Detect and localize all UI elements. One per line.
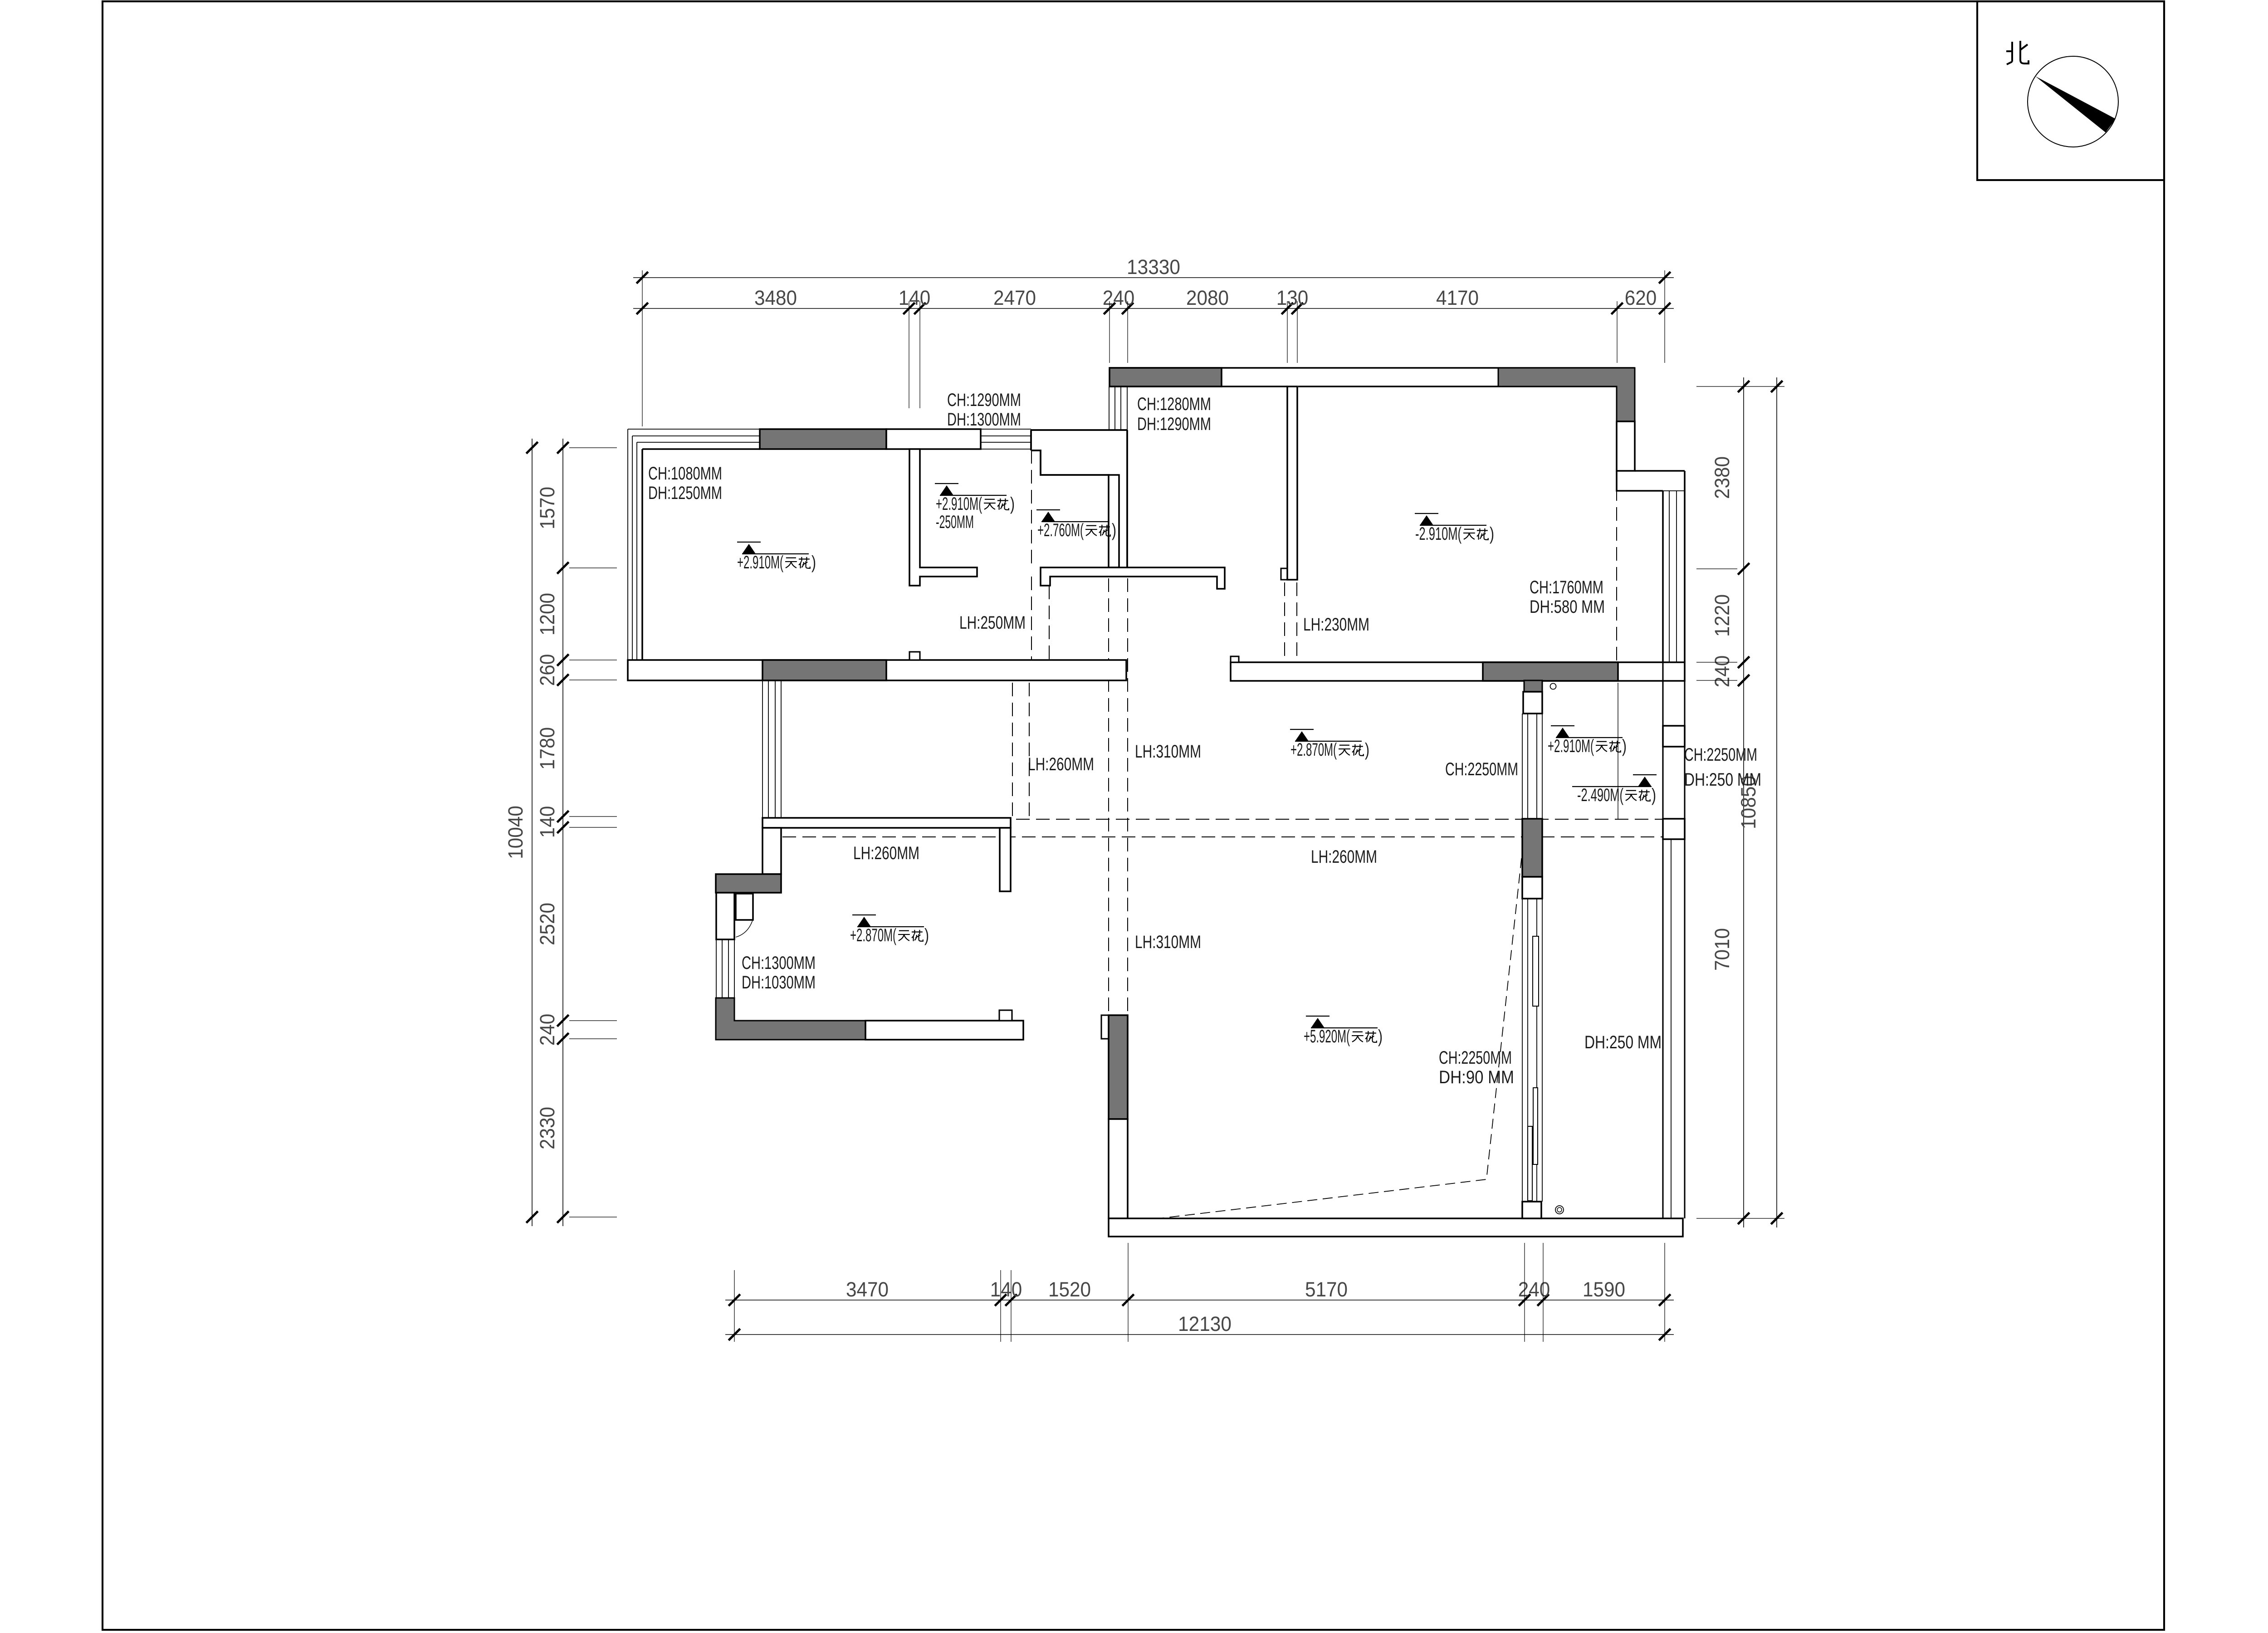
svg-text:240: 240 [1711,655,1734,688]
svg-text:+2.910M(: +2.910M( [1548,736,1594,756]
svg-text:): ) [811,552,816,572]
svg-text:260: 260 [536,654,559,686]
svg-text:): ) [1365,740,1369,760]
svg-text:130: 130 [1276,286,1309,309]
svg-text:DH:1300MM: DH:1300MM [947,410,1021,430]
svg-text:1520: 1520 [1048,1278,1091,1301]
svg-text:): ) [1622,736,1627,756]
svg-text:+5.920M(: +5.920M( [1304,1027,1350,1046]
svg-text:140: 140 [990,1278,1022,1301]
svg-text:): ) [1652,785,1656,805]
svg-text:2380: 2380 [1711,456,1734,499]
svg-text:): ) [1112,520,1116,540]
svg-text:1200: 1200 [536,593,559,636]
svg-text:): ) [1490,524,1494,544]
svg-text:LH:260MM: LH:260MM [1311,847,1377,867]
svg-text:1590: 1590 [1583,1278,1625,1301]
svg-text:240: 240 [1103,286,1135,309]
svg-text:DH:1030MM: DH:1030MM [742,973,816,993]
svg-text:1220: 1220 [1711,594,1734,637]
svg-text:CH:2250MM: CH:2250MM [1445,759,1518,779]
svg-text:2080: 2080 [1186,286,1229,309]
svg-text:DH:580 MM: DH:580 MM [1530,597,1605,617]
svg-text:DH:250 MM: DH:250 MM [1584,1032,1662,1052]
svg-text:+2.910M(: +2.910M( [936,494,982,514]
svg-text:12130: 12130 [1178,1312,1232,1335]
svg-text:+2.870M(: +2.870M( [1290,740,1337,760]
svg-text:13330: 13330 [1127,255,1180,279]
svg-text:+2.760M(: +2.760M( [1037,520,1084,540]
svg-text:LH:310MM: LH:310MM [1135,742,1201,762]
svg-text:DH:1290MM: DH:1290MM [1137,414,1211,434]
svg-text:3470: 3470 [846,1278,889,1301]
svg-text:140: 140 [899,286,931,309]
svg-text:4170: 4170 [1436,286,1479,309]
svg-text:2520: 2520 [536,903,559,945]
svg-text:-2.910M(: -2.910M( [1415,524,1461,544]
svg-text:DH:250 MM: DH:250 MM [1684,770,1761,790]
svg-text:-2.490M(: -2.490M( [1577,785,1623,805]
svg-text:LH:260MM: LH:260MM [853,843,919,863]
svg-text:7010: 7010 [1711,928,1734,971]
svg-text:LH:260MM: LH:260MM [1028,754,1094,774]
svg-text:DH:90 MM: DH:90 MM [1439,1067,1514,1087]
svg-text:CH:1080MM: CH:1080MM [648,464,722,484]
svg-text:CH:1290MM: CH:1290MM [947,390,1021,410]
svg-text:2470: 2470 [993,286,1036,309]
svg-text:CH:1760MM: CH:1760MM [1530,577,1603,597]
svg-text:CH:1280MM: CH:1280MM [1137,394,1211,414]
svg-text:CH:1300MM: CH:1300MM [742,953,816,973]
svg-text:LH:250MM: LH:250MM [959,613,1026,633]
svg-text:+2.870M(: +2.870M( [850,925,896,945]
svg-text:620: 620 [1625,286,1657,309]
svg-text:): ) [924,925,929,945]
svg-text:140: 140 [536,806,559,838]
svg-text:5170: 5170 [1305,1278,1348,1301]
svg-text:DH:1250MM: DH:1250MM [648,483,722,503]
svg-text:LH:230MM: LH:230MM [1303,615,1369,635]
svg-text:240: 240 [536,1014,559,1046]
svg-text:1780: 1780 [536,727,559,770]
svg-text:2330: 2330 [536,1107,559,1149]
svg-text:+2.910M(: +2.910M( [737,552,783,572]
svg-text:LH:310MM: LH:310MM [1135,932,1201,952]
svg-text:): ) [1378,1027,1383,1046]
svg-text:-250MM: -250MM [936,512,974,532]
svg-text:1570: 1570 [536,487,559,529]
svg-text:240: 240 [1518,1278,1550,1301]
svg-text:CH:2250MM: CH:2250MM [1684,745,1757,765]
svg-text:CH:2250MM: CH:2250MM [1439,1048,1512,1068]
svg-text:10040: 10040 [504,806,527,859]
svg-text:): ) [1010,494,1015,514]
svg-text:3480: 3480 [754,286,797,309]
